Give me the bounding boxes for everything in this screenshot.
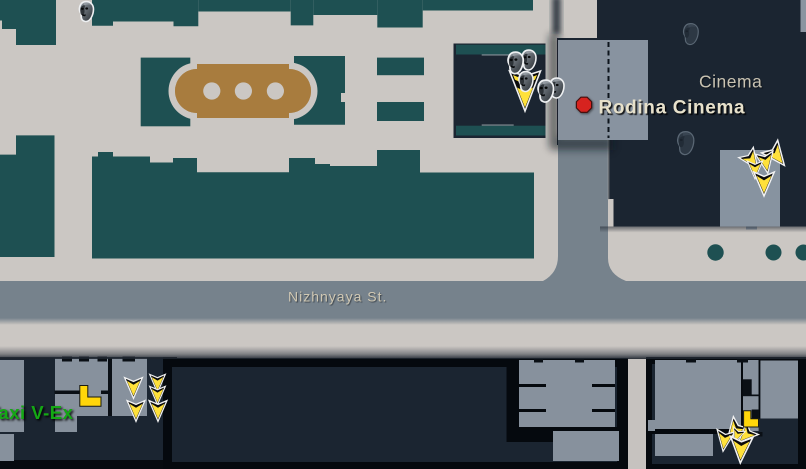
- svg-text:Nizhnyaya St.: Nizhnyaya St.: [288, 289, 387, 305]
- svg-text:Taxi V-Ex: Taxi V-Ex: [0, 402, 74, 423]
- svg-text:Cinema: Cinema: [699, 72, 762, 92]
- svg-text:Rodina Cinema: Rodina Cinema: [599, 98, 746, 119]
